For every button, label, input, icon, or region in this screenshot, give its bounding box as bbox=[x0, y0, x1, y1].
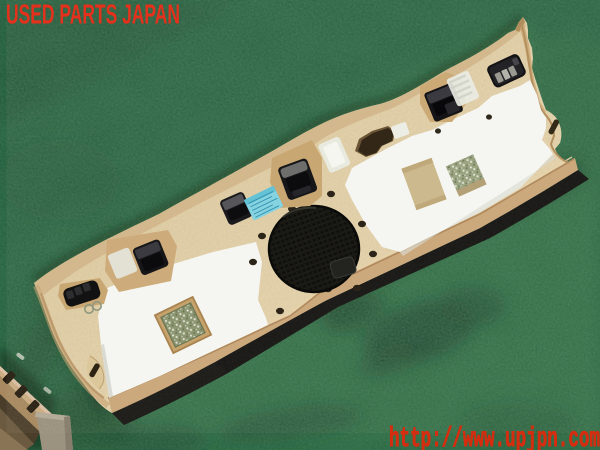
svg-text:USED PARTS JAPAN: USED PARTS JAPAN bbox=[6, 0, 180, 30]
svg-text:http://www.upjpn.com: http://www.upjpn.com bbox=[389, 424, 600, 450]
